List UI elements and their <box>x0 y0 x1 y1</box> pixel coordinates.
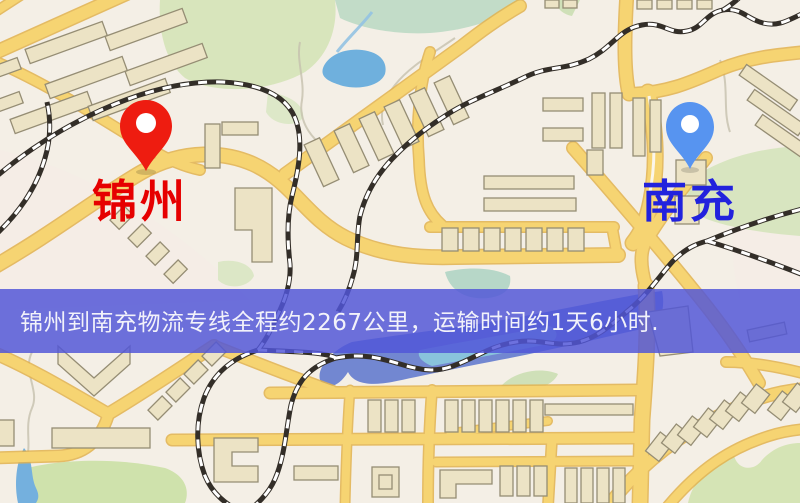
origin-city-label: 锦州 <box>92 175 188 228</box>
route-info-banner: 锦州到南充物流专线全程约2267公里，运输时间约1天6小时. <box>0 289 800 353</box>
destination-pin-hole <box>681 115 699 133</box>
origin-pin-hole <box>136 113 156 133</box>
route-banner-text: 锦州到南充物流专线全程约2267公里，运输时间约1天6小时. <box>20 310 659 336</box>
destination-city-label: 南充 <box>642 175 738 228</box>
map-canvas: 锦州 南充 锦州到南充物流专线全程约2267公里，运输时间约1天6小时. <box>0 0 800 503</box>
logistics-route-map: 锦州 南充 锦州到南充物流专线全程约2267公里，运输时间约1天6小时. <box>0 0 800 503</box>
